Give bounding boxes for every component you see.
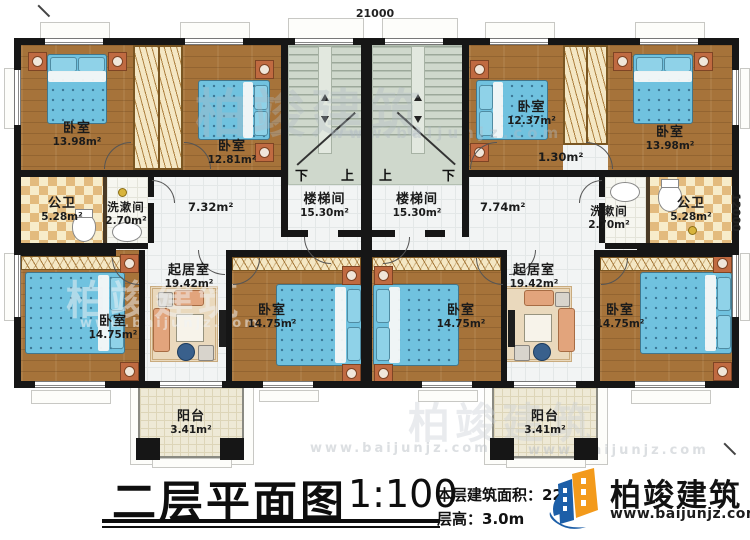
room-label-wash-left: 洗漱间2.70m² (101, 196, 151, 232)
stair-arrow (321, 116, 329, 123)
nightstand (108, 52, 127, 71)
party-wall (361, 45, 372, 381)
company-logo-icon (540, 462, 610, 534)
nightstand (470, 60, 489, 79)
wall (600, 250, 732, 257)
window (490, 38, 548, 45)
bed (198, 80, 270, 140)
nightstand (28, 52, 47, 71)
sill-outline (259, 390, 319, 402)
hall-left-area: 7.32m² (188, 200, 233, 214)
sill-outline (418, 390, 478, 402)
stair-left-direction: 下上 (288, 165, 361, 184)
room-label-bath-right: 公卫5.28m² (650, 192, 732, 228)
window (732, 70, 739, 125)
room-label-bedroom-br2: 卧室14.75m² (570, 300, 670, 334)
room-label-bedroom-tr2: 卧室13.98m² (608, 122, 732, 156)
wall (116, 243, 148, 249)
wall (21, 170, 281, 177)
wall (338, 230, 361, 237)
window (635, 381, 705, 388)
room-label-living-left: 起居室19.42m² (139, 260, 239, 294)
floor-plan-sheet: 柏竣建筑 www.baijunjz.com 柏竣建筑 www.baijunjz.… (0, 0, 750, 540)
room-label-bath-left: 公卫5.28m² (21, 192, 103, 228)
room-label-bedroom-bl1: 卧室14.75m² (63, 312, 163, 344)
nightstand (613, 52, 632, 71)
room-label-living-right: 起居室19.42m² (484, 260, 584, 294)
wall (288, 230, 308, 237)
room-label-wash-right: 洗漱间2.70m² (584, 200, 634, 236)
title-underline (102, 519, 440, 523)
floor-height-info: 层高：3.0m (437, 508, 524, 529)
stairwell (288, 45, 363, 185)
sill-outline (31, 390, 111, 404)
dimension-right: 12000 (730, 183, 743, 243)
wall (14, 38, 739, 45)
sill-outline (631, 390, 711, 404)
nightstand (120, 362, 139, 381)
room-label-bedroom-tr1: 卧室12.37m² (500, 96, 563, 132)
balcony-column (220, 438, 244, 460)
nightstand (255, 60, 274, 79)
window (385, 38, 443, 45)
balcony-column (490, 438, 514, 460)
bed (47, 54, 107, 124)
window (45, 38, 103, 45)
room-label-stair-left: 楼梯间15.30m² (288, 186, 361, 226)
stair-arrow (321, 94, 329, 101)
wardrobe (563, 45, 608, 145)
wall (21, 243, 116, 256)
wall (605, 243, 637, 249)
wall (425, 230, 445, 237)
stairwell (372, 45, 464, 185)
eave-outline (288, 18, 364, 40)
corner-tick (724, 443, 736, 455)
stair-arrow (414, 94, 422, 101)
room-label-stair-right: 楼梯间15.30m² (372, 186, 462, 226)
dimension-top: 21000 (340, 7, 410, 20)
sink (610, 182, 640, 202)
room-label-balcony-left: 阳台3.41m² (138, 405, 244, 441)
balcony-column (574, 438, 598, 460)
window (35, 381, 105, 388)
closet-right-area: 1.30m² (538, 150, 583, 164)
wall (232, 250, 361, 257)
wall (14, 381, 739, 388)
room-label-bedroom-tl1: 卧室13.98m² (21, 118, 133, 152)
company-website: www.baijunjz.com (610, 506, 750, 522)
window (732, 255, 739, 317)
room-label-bedroom-bl2: 卧室14.75m² (222, 300, 322, 334)
stair-arrow (414, 116, 422, 123)
window (295, 38, 353, 45)
eave-outline (382, 18, 458, 40)
watermark-site: www.baijunjz.com (310, 441, 491, 456)
wall (469, 170, 732, 177)
nightstand (374, 266, 393, 285)
room-label-bedroom-tl2: 卧室12.81m² (183, 138, 281, 168)
bed (633, 54, 693, 124)
balcony-column (136, 438, 160, 460)
nightstand (713, 362, 732, 381)
wall (372, 230, 395, 237)
balcony-door (160, 381, 222, 388)
sill-outline (740, 68, 750, 129)
window (422, 381, 472, 388)
room-label-bedroom-br1: 卧室14.75m² (411, 300, 511, 334)
nightstand (694, 52, 713, 71)
wall (281, 45, 288, 237)
hall-right-area: 7.74m² (480, 200, 525, 214)
window (263, 381, 313, 388)
window (185, 38, 243, 45)
wardrobe (133, 45, 183, 170)
nightstand (342, 266, 361, 285)
corner-tick (38, 5, 50, 17)
room-label-balcony-right: 阳台3.41m² (492, 405, 598, 441)
title-underline (102, 526, 440, 528)
window (14, 255, 21, 317)
balcony-door (514, 381, 576, 388)
window (640, 38, 698, 45)
wall (462, 45, 469, 237)
sill-outline (740, 253, 750, 321)
stair-right-direction: 上下 (372, 165, 462, 184)
window (14, 70, 21, 125)
